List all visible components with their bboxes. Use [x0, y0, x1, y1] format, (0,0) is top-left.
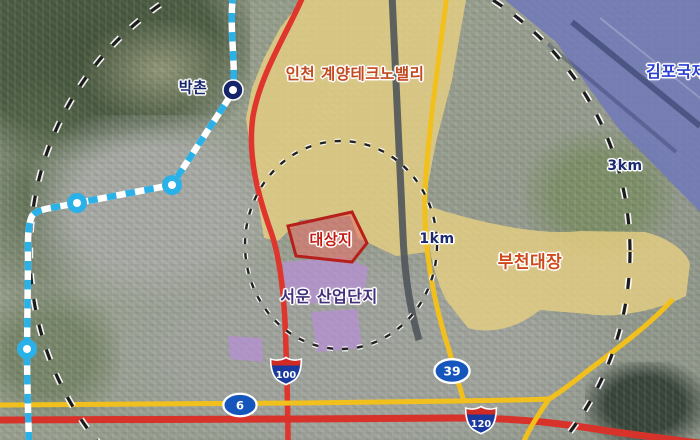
subway-station-marker: [17, 339, 37, 359]
shield-number: 100: [276, 370, 297, 381]
area-seoun-industrial: [311, 309, 362, 352]
road-red-expressway-120: [0, 418, 700, 440]
label-bakchon-station: 박촌: [179, 77, 208, 98]
shield-expressway-100: 100: [269, 356, 303, 386]
shield-number: 39: [443, 365, 460, 379]
shield-national-route-39: 39: [433, 358, 471, 385]
label-gimpo-airport: 김포국제공항: [646, 58, 700, 82]
label-ring-3km: 3km: [607, 158, 642, 174]
road-yellow-northeast: [524, 299, 673, 440]
label-bucheon-daejang: 부천대장: [498, 248, 563, 273]
shield-number: 120: [471, 419, 492, 430]
shield-number: 6: [236, 399, 244, 413]
shield-national-route-6: 6: [222, 392, 258, 418]
subway-station-marker: [162, 175, 182, 195]
shield-expressway-120: 120: [464, 405, 498, 435]
label-ring-1km: 1km: [419, 231, 454, 247]
label-seoun-industrial: 서운 산업단지: [280, 283, 377, 307]
area-seoun-industrial: [228, 336, 263, 362]
subway-station-marker: [67, 193, 87, 213]
label-site: 대상지: [310, 229, 353, 250]
satellite-map-canvas: 인천 계양테크노밸리 김포국제공항 박촌 대상지 서운 산업단지 부천대장 1k…: [0, 0, 700, 440]
bakchon-station-marker: [223, 80, 243, 100]
subway-line: [17, 0, 243, 440]
label-techno-valley: 인천 계양테크노밸리: [286, 62, 425, 84]
development-areas: [228, 0, 700, 362]
